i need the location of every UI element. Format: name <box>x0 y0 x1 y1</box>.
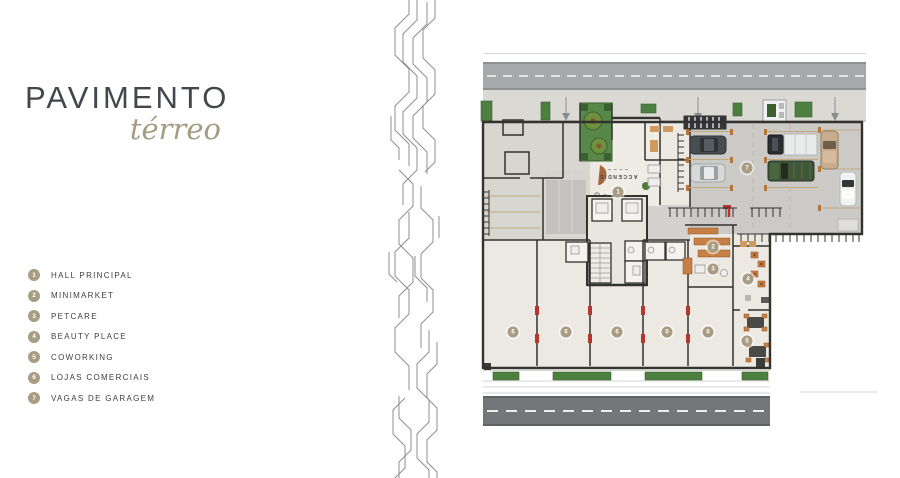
car-tan <box>821 131 838 169</box>
garden <box>580 103 612 161</box>
core <box>587 196 647 285</box>
building-label-underline <box>608 169 628 170</box>
plan-badge-garagem: 7 <box>742 163 753 174</box>
building-name-label: ACCENDIS <box>589 173 647 179</box>
plan-badge-loja-5: 6 <box>703 327 714 338</box>
plan-badge-petcare: 3 <box>708 264 719 275</box>
utility-structure <box>763 100 786 121</box>
stairs <box>589 243 611 283</box>
floor-plan: ACCENDIS 1 2 3 4 5 6 6 6 6 6 7 <box>0 0 900 478</box>
road-bottom <box>483 396 770 426</box>
page: PAVIMENTO térreo 1 HALL PRINCIPAL 2 MINI… <box>0 0 900 478</box>
divider-line <box>800 391 878 393</box>
truck-white <box>768 134 817 155</box>
car-silver-sedan <box>691 164 725 182</box>
plan-badge-hall: 1 <box>613 187 624 198</box>
truck-green <box>768 161 814 181</box>
plan-badge-loja-2: 6 <box>561 327 572 338</box>
sidewalk-bottom <box>483 371 770 394</box>
plan-badge-coworking: 5 <box>742 336 753 347</box>
car-white <box>840 172 856 206</box>
plan-badge-beauty: 4 <box>743 274 754 285</box>
car-dark-sedan <box>690 136 726 154</box>
plan-badge-loja-1: 6 <box>508 327 519 338</box>
floor-plan-drawing <box>478 48 874 430</box>
plan-badge-loja-4: 6 <box>662 327 673 338</box>
plan-badge-loja-3: 6 <box>612 327 623 338</box>
plan-badge-minimarket: 2 <box>708 242 719 253</box>
road-top <box>483 53 866 90</box>
sidewalk-top <box>481 90 866 122</box>
